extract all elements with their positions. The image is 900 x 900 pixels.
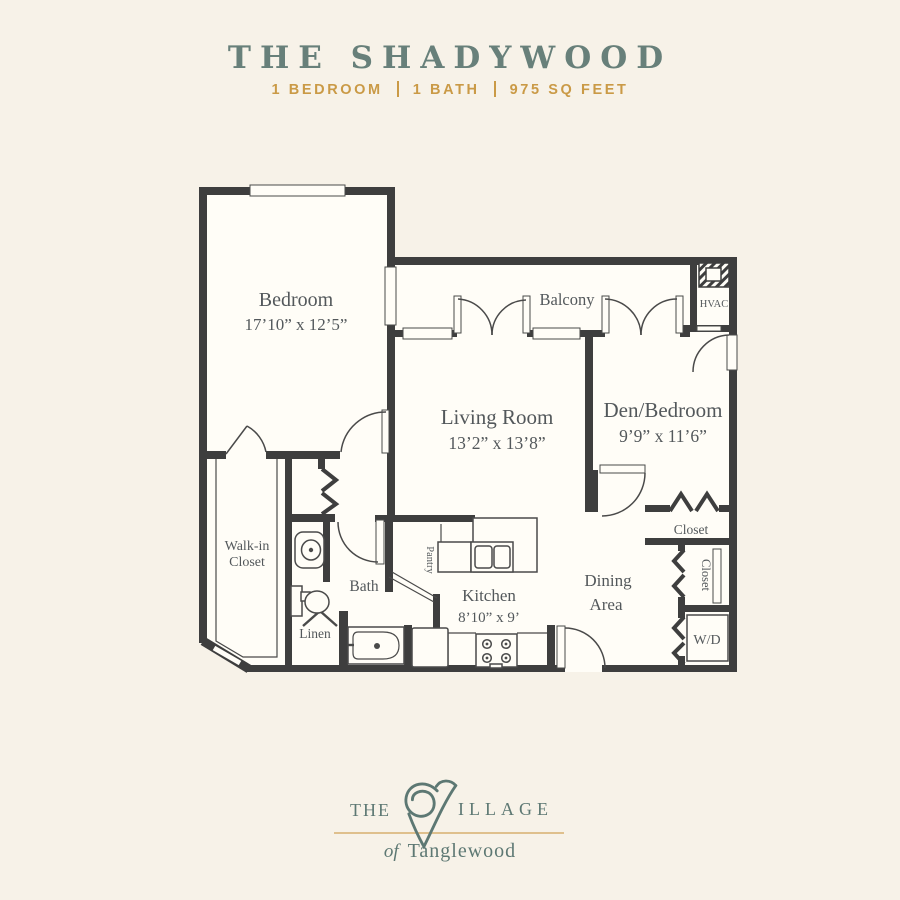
door-leaf <box>600 465 645 473</box>
room-label-walkin-1: Walk-in <box>225 539 270 554</box>
logo-the: THE <box>350 800 391 821</box>
door-leaf <box>376 520 384 564</box>
spec-divider <box>494 81 496 97</box>
spec-sqfeet: 975 SQ FEET <box>510 82 629 98</box>
french-door-leaf <box>454 296 461 333</box>
brand-logo: THE ILLAGE ofTanglewood <box>320 780 580 872</box>
toilet-fixture <box>295 532 324 568</box>
page-title: THE SHADYWOOD <box>0 41 900 75</box>
stove-fixture <box>476 634 517 668</box>
room-label-closet-side: Closet <box>699 559 713 591</box>
closet-door-slot <box>713 549 721 603</box>
bathtub-fixture <box>348 627 404 664</box>
window <box>403 328 452 339</box>
french-door-leaf <box>602 296 609 333</box>
kitchen-sink-fixture <box>494 546 510 568</box>
room-label-kitchen: Kitchen <box>462 586 516 605</box>
room-label-walkin-2: Closet <box>229 555 265 570</box>
fridge-fixture <box>412 628 448 667</box>
room-label-wd: W/D <box>693 633 720 648</box>
room-label-closet-top: Closet <box>674 522 709 537</box>
specs-line: 1 BEDROOM1 BATH975 SQ FEET <box>0 81 900 98</box>
room-label-hvac: HVAC <box>700 299 728 310</box>
window <box>250 185 345 196</box>
spec-divider <box>397 81 399 97</box>
room-label-dining-1: Dining <box>584 571 632 590</box>
room-label-pantry: Pantry <box>424 546 435 574</box>
door-leaf <box>382 410 389 453</box>
hvac-door <box>697 326 721 331</box>
spec-bedrooms: 1 BEDROOM <box>272 82 383 98</box>
room-label-den: Den/Bedroom <box>604 398 723 422</box>
french-door-leaf <box>523 296 530 333</box>
page: THE SHADYWOOD 1 BEDROOM1 BATH975 SQ FEET <box>0 0 900 900</box>
room-label-bedroom: Bedroom <box>259 289 334 311</box>
floorplan-svg: Bedroom 17’10” x 12’5” Balcony HVAC Livi… <box>190 175 745 680</box>
door-leaf <box>727 335 737 370</box>
room-label-living: Living Room <box>441 405 554 429</box>
room-label-balcony: Balcony <box>540 290 596 309</box>
room-label-linen: Linen <box>299 626 331 641</box>
hvac-hatch-icon <box>699 263 729 287</box>
logo-script-v-icon <box>400 777 462 849</box>
kitchen-sink-fixture <box>475 546 492 568</box>
logo-illage: ILLAGE <box>458 799 553 820</box>
door-leaf <box>557 626 565 668</box>
room-dims-bedroom: 17’10” x 12’5” <box>245 315 348 334</box>
room-dims-den: 9’9” x 11’6” <box>619 426 707 446</box>
window <box>533 328 580 339</box>
room-dims-living: 13’2” x 13’8” <box>448 433 545 453</box>
room-dims-kitchen: 8’10” x 9’ <box>458 610 520 626</box>
room-label-dining-2: Area <box>589 595 622 614</box>
logo-of: of <box>384 841 399 862</box>
spec-baths: 1 BATH <box>413 82 480 98</box>
room-label-bath: Bath <box>349 578 379 595</box>
window <box>385 267 396 325</box>
french-door-leaf <box>676 296 683 333</box>
